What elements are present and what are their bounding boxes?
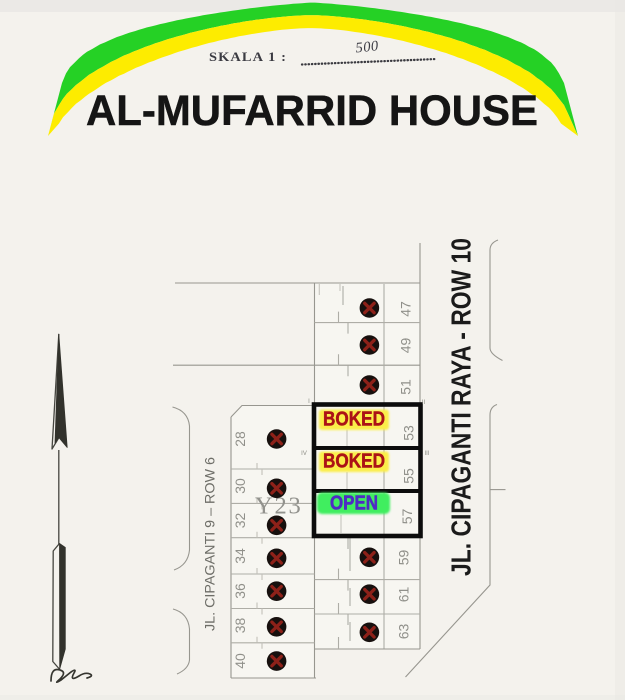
svg-text:SKALA 1 :: SKALA 1 : (209, 49, 287, 64)
svg-text:II: II (422, 400, 426, 406)
svg-text:61: 61 (396, 587, 412, 603)
svg-text:38: 38 (232, 618, 248, 634)
svg-text:40: 40 (232, 653, 248, 669)
svg-text:36: 36 (232, 583, 248, 599)
svg-text:55: 55 (401, 468, 417, 484)
svg-text:OPEN: OPEN (330, 493, 378, 515)
svg-text:JL. CIPAGANTI RAYA - ROW 10: JL. CIPAGANTI RAYA - ROW 10 (446, 238, 477, 576)
svg-text:28: 28 (232, 431, 248, 447)
svg-text:59: 59 (396, 550, 412, 566)
svg-text:BOKED: BOKED (323, 409, 385, 431)
svg-text:BOKED: BOKED (323, 451, 385, 473)
svg-text:32: 32 (232, 513, 248, 529)
svg-text:30: 30 (232, 478, 248, 494)
svg-text:49: 49 (398, 338, 414, 354)
svg-text:AL-MUFARRID HOUSE: AL-MUFARRID HOUSE (86, 87, 538, 135)
svg-text:34: 34 (232, 548, 248, 564)
svg-text:51: 51 (398, 379, 414, 395)
svg-text:63: 63 (396, 624, 412, 640)
svg-text:53: 53 (401, 425, 417, 441)
svg-text:500: 500 (355, 38, 380, 56)
svg-text:JL. CIPAGANTI 9 – ROW 6: JL. CIPAGANTI 9 – ROW 6 (203, 457, 218, 631)
svg-text:47: 47 (398, 301, 414, 317)
svg-text:IV: IV (301, 451, 307, 457)
svg-text:III: III (424, 451, 429, 457)
svg-text:57: 57 (399, 509, 415, 525)
